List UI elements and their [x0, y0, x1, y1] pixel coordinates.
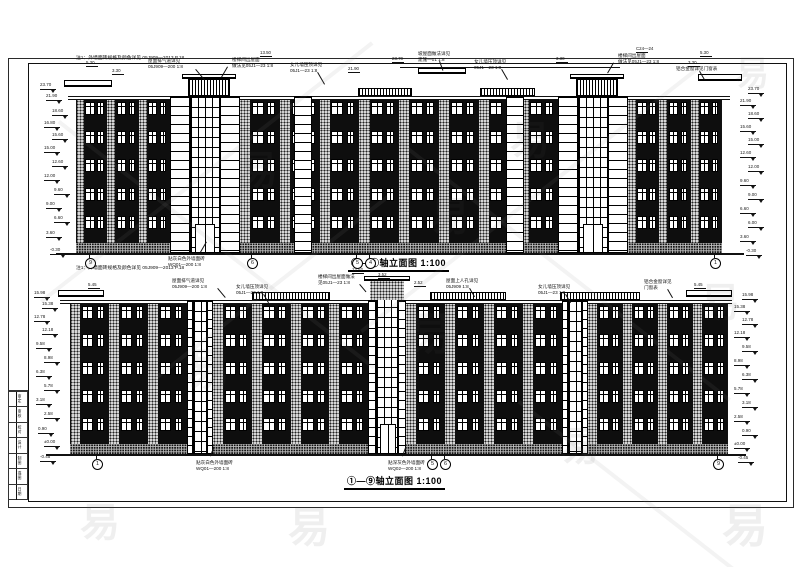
level-marker-triangle: [751, 132, 755, 135]
level-marker-triangle: [55, 391, 59, 394]
level-marker-value: -0.30: [50, 248, 60, 253]
annotation-label: 楼梯间出屋面 做法见05J1—23 1:8: [618, 53, 659, 64]
dimension-tick: [688, 66, 700, 67]
dimension-number: 2.52: [414, 281, 423, 285]
level-marker-value: 18.60: [52, 109, 63, 114]
annotation-label: 贴深灰色外墙面砖 WQ02—200 1:8: [388, 460, 425, 471]
axis-bubble: 1: [92, 459, 103, 470]
level-marker-value: 2.58: [734, 415, 743, 420]
level-marker-value: 12.00: [748, 165, 759, 170]
level-marker-triangle: [751, 186, 755, 189]
level-marker-value: 12.78: [34, 315, 45, 320]
level-marker-value: 6.00: [748, 221, 757, 226]
level-marker-triangle: [745, 312, 749, 315]
annotation-label: 楼梯间出屋面 做法见05J1—23 1:8: [232, 57, 273, 68]
annotation-label: 贴灰白色外墙面砖 WQ01—200 1:8: [168, 256, 205, 267]
level-marker-triangle: [749, 463, 753, 466]
level-marker-triangle: [65, 223, 69, 226]
dimension-annotation-layer: 23.7021.9018.6016.8015.6015.0012.6012.00…: [0, 0, 800, 567]
level-marker-triangle: [63, 140, 67, 143]
annotation-leader-line: [501, 69, 508, 80]
axis-bubble: 4: [365, 258, 376, 269]
axis-bubble: 5: [427, 459, 438, 470]
level-marker-value: 12.18: [42, 328, 53, 333]
level-marker-value: 6.60: [54, 216, 63, 221]
annotation-leader-line: [317, 72, 325, 85]
level-marker-triangle: [63, 116, 67, 119]
level-marker-triangle: [57, 101, 61, 104]
level-marker-triangle: [759, 119, 763, 122]
dimension-tick: [556, 62, 568, 63]
dimension-number: 3.30: [112, 69, 121, 73]
level-marker-triangle: [45, 322, 49, 325]
level-marker-value: 12.60: [52, 160, 63, 165]
level-marker-triangle: [57, 238, 61, 241]
dimension-number: 13.50: [260, 51, 271, 55]
level-marker-value: 21.90: [46, 94, 57, 99]
level-marker-value: 3.60: [46, 231, 55, 236]
level-marker-value: -0.45: [40, 455, 50, 460]
level-marker-triangle: [751, 106, 755, 109]
level-marker-value: -0.30: [746, 249, 756, 254]
axis-bubble: 6: [440, 459, 451, 470]
level-marker-value: 15.38: [734, 305, 745, 310]
level-marker-triangle: [47, 377, 51, 380]
level-marker-triangle: [759, 145, 763, 148]
dimension-number: 3.30: [556, 57, 565, 61]
level-marker-value: 12.60: [740, 151, 751, 156]
level-marker-triangle: [55, 447, 59, 450]
dimension-tick: [392, 62, 404, 63]
level-marker-value: 8.98: [44, 356, 53, 361]
level-marker-triangle: [753, 325, 757, 328]
level-marker-triangle: [47, 349, 51, 352]
dimension-tick: [378, 278, 390, 279]
level-marker-triangle: [49, 434, 53, 437]
level-marker-triangle: [745, 338, 749, 341]
axis-bubble: 9: [85, 258, 96, 269]
level-marker-value: 9.00: [748, 193, 757, 198]
level-marker-triangle: [751, 158, 755, 161]
level-marker-value: 23.70: [40, 83, 51, 88]
dimension-number: 5.45: [694, 283, 703, 287]
level-marker-triangle: [47, 405, 51, 408]
annotation-label: 贴灰白色外墙面砖 WQ01—200 1:8: [196, 460, 233, 471]
level-marker-triangle: [759, 172, 763, 175]
axis-bubble: 5: [352, 258, 363, 269]
level-marker-value: 3.60: [740, 235, 749, 240]
annotation-leader-line: [699, 71, 705, 80]
level-marker-triangle: [759, 228, 763, 231]
annotation-label: 屋面上人孔详见 05J909 1:8: [446, 278, 478, 289]
level-marker-triangle: [753, 408, 757, 411]
level-marker-value: 5.78: [734, 387, 743, 392]
level-marker-value: 5.78: [44, 384, 53, 389]
level-marker-value: 18.60: [748, 112, 759, 117]
level-marker-value: 0.90: [742, 429, 751, 434]
dimension-tick: [86, 66, 98, 67]
level-marker-triangle: [753, 352, 757, 355]
level-marker-value: 15.98: [34, 291, 45, 296]
level-marker-triangle: [759, 94, 763, 97]
level-marker-value: 15.60: [52, 133, 63, 138]
level-marker-triangle: [53, 335, 57, 338]
dimension-number: 3.52: [378, 273, 387, 277]
level-marker-triangle: [65, 195, 69, 198]
level-marker-value: 12.00: [44, 174, 55, 179]
level-marker-value: 3.18: [742, 401, 751, 406]
dimension-number: 23.70: [392, 57, 403, 61]
level-marker-triangle: [753, 300, 757, 303]
dimension-tick: [414, 286, 426, 287]
annotation-leader-line: [359, 284, 366, 292]
annotation-leader-line: [200, 242, 207, 253]
level-marker-value: 15.38: [42, 302, 53, 307]
level-marker-triangle: [759, 200, 763, 203]
level-marker-triangle: [61, 255, 65, 258]
dimension-number: 5.30: [86, 61, 95, 65]
annotation-leader-line: [402, 447, 406, 457]
annotation-leader-line: [221, 67, 228, 78]
level-marker-triangle: [745, 422, 749, 425]
level-marker-triangle: [751, 242, 755, 245]
level-marker-triangle: [745, 449, 749, 452]
level-marker-value: 23.70: [748, 87, 759, 92]
level-marker-value: 9.60: [54, 188, 63, 193]
dimension-number: C24—24: [636, 47, 653, 51]
level-marker-triangle: [757, 256, 761, 259]
level-marker-triangle: [57, 209, 61, 212]
level-marker-triangle: [745, 394, 749, 397]
level-marker-triangle: [745, 366, 749, 369]
dimension-tick: [348, 72, 360, 73]
axis-bubble: 6: [247, 258, 258, 269]
annotation-label: 坡屋面做法详见 建施—01 1:8: [418, 51, 450, 62]
dimension-tick: [636, 52, 648, 53]
dimension-tick: [88, 288, 100, 289]
level-marker-value: ±0.00: [44, 440, 55, 445]
level-marker-value: 15.00: [44, 146, 55, 151]
level-marker-value: 8.98: [734, 359, 743, 364]
level-marker-triangle: [753, 380, 757, 383]
axis-bubble: 9: [713, 459, 724, 470]
dimension-tick: [700, 56, 712, 57]
level-marker-value: -0.45: [738, 456, 748, 461]
level-marker-triangle: [63, 167, 67, 170]
level-marker-value: 21.90: [740, 99, 751, 104]
level-marker-value: 12.18: [734, 331, 745, 336]
annotation-label: 屋面排气道详见 05J909—200 1:8: [172, 278, 207, 289]
level-marker-triangle: [55, 153, 59, 156]
dimension-tick: [694, 288, 706, 289]
level-marker-triangle: [55, 363, 59, 366]
level-marker-value: 6.38: [36, 370, 45, 375]
dimension-tick: [352, 273, 364, 274]
dimension-number: 5.30: [700, 51, 709, 55]
annotation-label: 屋面排气道详见 05J909—200 1:8: [148, 58, 183, 69]
dimension-tick: [112, 74, 124, 75]
level-marker-value: 15.00: [748, 138, 759, 143]
level-marker-value: 9.60: [740, 179, 749, 184]
annotation-leader-line: [210, 447, 214, 457]
level-marker-value: 0.90: [38, 427, 47, 432]
level-marker-triangle: [55, 181, 59, 184]
dimension-number: 21.90: [348, 67, 359, 71]
level-marker-value: ±0.00: [734, 442, 745, 447]
level-marker-value: 16.80: [44, 121, 55, 126]
level-marker-value: 6.38: [742, 373, 751, 378]
level-marker-triangle: [51, 462, 55, 465]
dimension-tick: [260, 56, 272, 57]
level-marker-value: 9.58: [742, 345, 751, 350]
level-marker-value: 15.98: [742, 293, 753, 298]
drawing-sheet: 审定审核校对设计制图描图日期 注1：外墙面砖规格及颜色详见 05J909—201…: [0, 0, 800, 567]
level-marker-triangle: [53, 309, 57, 312]
level-marker-triangle: [753, 436, 757, 439]
dimension-number: 5.45: [88, 283, 97, 287]
level-marker-value: 9.00: [46, 202, 55, 207]
annotation-leader-line: [195, 69, 205, 80]
level-marker-value: 6.60: [740, 207, 749, 212]
level-marker-value: 9.58: [36, 342, 45, 347]
level-marker-triangle: [751, 214, 755, 217]
level-marker-value: 12.78: [742, 318, 753, 323]
annotation-leader-line: [217, 288, 225, 298]
dimension-number: 3.30: [688, 61, 697, 65]
level-marker-value: 2.58: [44, 412, 53, 417]
level-marker-value: 15.60: [740, 125, 751, 130]
level-marker-triangle: [55, 419, 59, 422]
axis-bubble: 1: [710, 258, 721, 269]
annotation-leader-line: [607, 63, 614, 74]
annotation-label: 楼梯间出屋面做法 见05J1—23 1:8: [318, 274, 355, 285]
level-marker-value: 3.18: [36, 398, 45, 403]
level-marker-triangle: [55, 128, 59, 131]
